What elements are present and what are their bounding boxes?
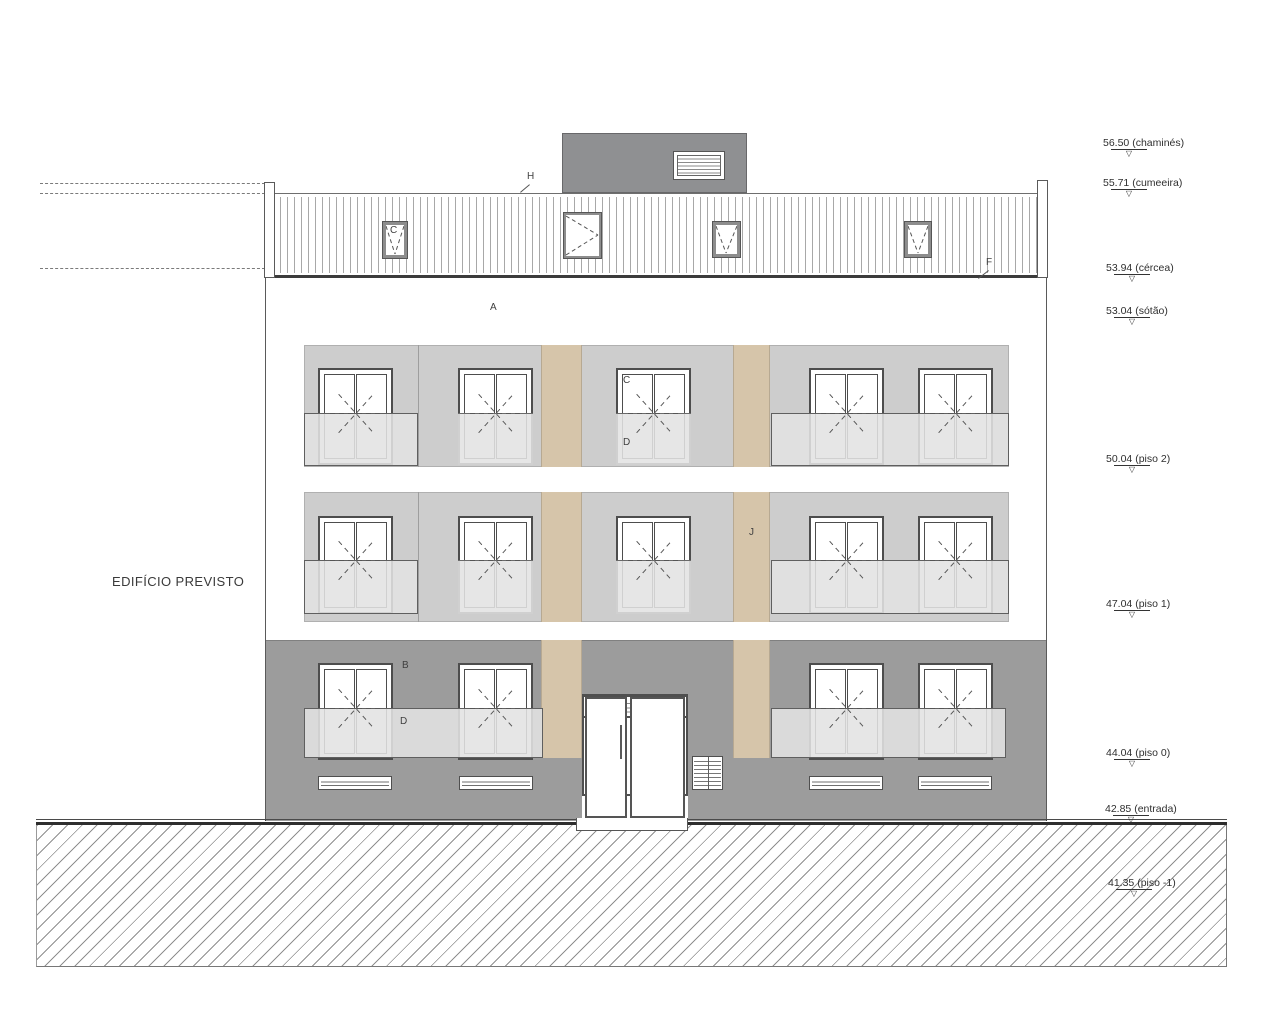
- level-marker-icon: ▽: [1114, 465, 1150, 473]
- letter-skylight: C: [390, 226, 397, 236]
- facade: G A C D J B D: [265, 278, 1047, 821]
- ground-hatch: [36, 825, 1227, 967]
- window-opening-mark: [468, 385, 524, 441]
- level-marker-icon: ▽: [1111, 189, 1147, 197]
- dashed-level-line: [40, 183, 265, 184]
- window-opening-mark: [928, 385, 984, 441]
- louver-lines: [812, 779, 880, 787]
- level-marker-icon: ▽: [1114, 610, 1150, 618]
- roof-skylight: [713, 222, 740, 257]
- door-handle: [620, 725, 622, 759]
- level-marker-icon: ▽: [1111, 149, 1147, 157]
- vent-louver-lines: [677, 155, 721, 176]
- drawing-title: EDIFÍCIO PREVISTO: [112, 574, 244, 589]
- window-opening-mark: [468, 680, 524, 736]
- louver-lines: [321, 779, 389, 787]
- entrance-step: [576, 818, 688, 831]
- wall-vent-louver: [318, 776, 392, 790]
- level-marker-icon: ▽: [1116, 889, 1152, 897]
- roof-skylight: [905, 222, 931, 257]
- intercom-divider: [708, 757, 709, 789]
- window-opening-mark: [328, 385, 384, 441]
- intercom-panel: [692, 756, 723, 790]
- letter-roof-eave: F: [986, 258, 992, 268]
- dashed-level-line: [40, 268, 265, 269]
- window-opening-mark: [928, 680, 984, 736]
- level-marker-icon: ▽: [1114, 317, 1150, 325]
- chimney-vent-grille: [673, 151, 725, 180]
- dashed-level-line: [40, 193, 265, 194]
- level-marker-icon: ▽: [1113, 815, 1149, 823]
- letter-p2-window-top: C: [623, 376, 630, 386]
- window-opening-mark: [819, 680, 875, 736]
- level-label-entrada: 42.85 (entrada)▽: [1105, 803, 1177, 823]
- roof-skylight-large: [564, 213, 601, 258]
- window-opening-mark: [468, 532, 524, 588]
- letter-p2-window-bottom: D: [623, 438, 630, 448]
- level-marker-icon: ▽: [1114, 759, 1150, 767]
- window-opening-mark: [626, 532, 682, 588]
- window-opening-mark: [328, 532, 384, 588]
- level-label-sotao: 53.04 (sótão)▽: [1106, 305, 1168, 325]
- leader-line: [520, 184, 530, 192]
- louver-lines: [921, 779, 989, 787]
- level-label-piso1: 47.04 (piso 1)▽: [1106, 598, 1170, 618]
- letter-p0-wall: B: [402, 661, 409, 671]
- letter-p0-guard: D: [400, 717, 407, 727]
- window-opening-mark: [328, 680, 384, 736]
- window-opening-mark: [819, 385, 875, 441]
- level-label-cumeeira: 55.71 (cumeeira)▽: [1103, 177, 1182, 197]
- wall-vent-louver: [918, 776, 992, 790]
- letter-attic: A: [490, 303, 497, 313]
- level-label-cercea: 53.94 (cércea)▽: [1106, 262, 1174, 282]
- louver-lines: [462, 779, 530, 787]
- level-label-piso2: 50.04 (piso 2)▽: [1106, 453, 1170, 473]
- wall-vent-louver: [809, 776, 883, 790]
- level-marker-icon: ▽: [1114, 274, 1150, 282]
- level-label-chamines: 56.50 (chaminés)▽: [1103, 137, 1184, 157]
- window-opening-mark: [626, 385, 682, 441]
- wall-vent-louver: [459, 776, 533, 790]
- window-opening-mark: [819, 532, 875, 588]
- letter-p1-pilaster: J: [749, 528, 754, 538]
- window-opening-mark: [928, 532, 984, 588]
- parapet-right: [1037, 180, 1048, 278]
- entrance-door: [582, 694, 688, 796]
- level-label-piso-1: 41.35 (piso -1)▽: [1108, 877, 1176, 897]
- chimney: [562, 133, 747, 193]
- letter-roof-ridge: H: [527, 172, 534, 182]
- door-leaf-right: [630, 697, 685, 818]
- entrance-recess: G: [582, 694, 688, 821]
- level-label-piso0: 44.04 (piso 0)▽: [1106, 747, 1170, 767]
- elevation-drawing: EDIFÍCIO PREVISTO: [0, 0, 1287, 1024]
- parapet-left: [264, 182, 275, 278]
